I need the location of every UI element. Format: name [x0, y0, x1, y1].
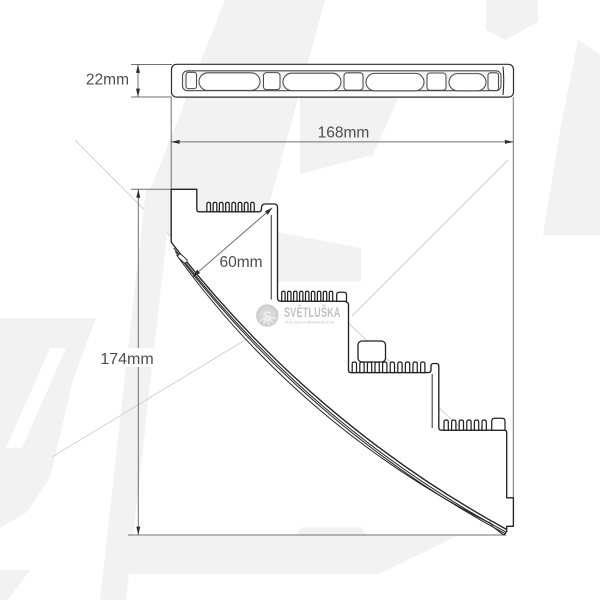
svg-text:174mm: 174mm	[100, 351, 153, 368]
svg-text:SVĚTLUŠKA: SVĚTLUŠKA	[284, 305, 341, 320]
svg-text:60mm: 60mm	[219, 254, 262, 271]
svg-text:168mm: 168mm	[318, 125, 370, 142]
svg-text:22mm: 22mm	[86, 72, 129, 89]
svg-text:S: S	[263, 308, 272, 324]
svg-text:VAŠE CESTA K NÁHRADNÍM DÍLŮM: VAŠE CESTA K NÁHRADNÍM DÍLŮM	[285, 319, 334, 325]
